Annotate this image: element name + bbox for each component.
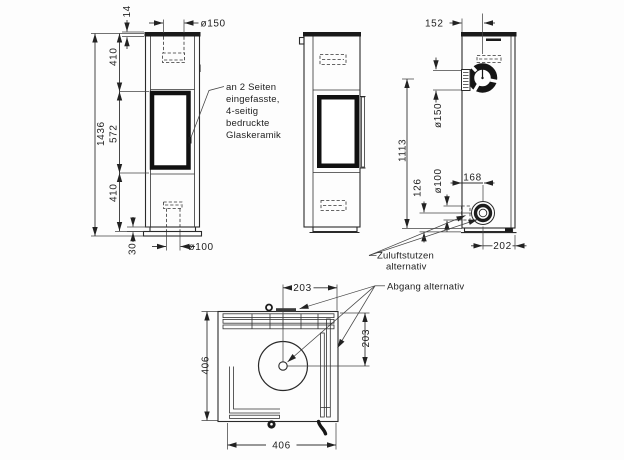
dim-front-top-plate: 14 [122, 5, 133, 17]
glass-note-leader-dot [189, 137, 192, 144]
plan-flue-center [279, 362, 287, 370]
back-flue-outlet [469, 63, 500, 93]
dim-back-air-inlet-from-right: 202 [493, 241, 512, 252]
flue-outlet-note: Abgang alternativ [288, 282, 465, 363]
plan-door-handle-hook [319, 422, 326, 434]
glass-note-line-1: an 2 Seiten [226, 82, 276, 93]
back-collar-hatch [477, 56, 501, 63]
flue-outlet-note-label: Abgang alternativ [387, 282, 464, 293]
side-top-vent-hidden [320, 55, 346, 65]
plan-hinge-pin [266, 305, 272, 311]
side-rear-tab [300, 38, 305, 45]
back-top-plate [461, 32, 517, 37]
dim-front-upper-section: 410 [109, 48, 120, 67]
dim-front-glass-section: 572 [109, 125, 120, 144]
side-glass-door [319, 97, 357, 166]
plan-front-knob [267, 420, 275, 428]
glass-note-line-5: Glaskeramik [226, 130, 281, 141]
dim-back-flue-center-height: 1113 [398, 139, 409, 162]
plan-top-collar-mark [276, 308, 296, 312]
dim-back-flue-center-from-edge: 152 [425, 19, 444, 30]
dim-back-air-inlet-from-left: 168 [463, 173, 482, 184]
air-inlet-note-line-1: Zuluftstutzen [377, 251, 434, 262]
dim-front-floor-duct-diameter: ø100 [189, 242, 214, 253]
side-top-plate [303, 32, 361, 37]
glass-note-line-3: 4-seitig [226, 106, 258, 117]
front-view: 1436 410 572 410 30 14 ø150 ø100 an 2 Se… [91, 5, 281, 255]
air-inlet-note-line-2: alternativ [386, 262, 427, 273]
front-flue-collar-hidden [163, 37, 185, 63]
front-glass-door [152, 93, 189, 168]
plan-corner-shield [230, 367, 281, 419]
dim-plan-flue-offset-horizontal: 203 [293, 283, 312, 294]
air-inlet-note: Zuluftstutzen alternativ [369, 216, 478, 273]
drawing-canvas: 1436 410 572 410 30 14 ø150 ø100 an 2 Se… [0, 0, 624, 460]
dim-back-rear-flue-diameter: ø150 [433, 103, 444, 128]
dim-back-air-inlet-center-height: 126 [413, 179, 424, 198]
glass-note-line-4: bedruckte [226, 118, 270, 129]
dim-plan-depth: 406 [201, 356, 212, 375]
dim-front-lower-section: 410 [109, 184, 120, 203]
back-dimensions [402, 14, 527, 250]
back-collar-hidden-edge [486, 39, 501, 42]
plan-top-grille [223, 314, 334, 329]
dim-front-base-height: 30 [128, 243, 139, 255]
front-base [144, 227, 202, 236]
side-bottom-vent-hidden [321, 201, 346, 211]
stove-dimension-drawing: 1436 410 572 410 30 14 ø150 ø100 an 2 Se… [0, 0, 624, 460]
plan-side-grille [321, 319, 331, 417]
glass-note-line-2: eingefasste, [226, 94, 280, 105]
front-top-plate [145, 32, 201, 37]
dim-front-flue-collar-diameter: ø150 [201, 19, 226, 30]
back-view: 152 ø150 1113 126 ø100 168 202 Zuluftstu… [288, 14, 527, 363]
side-door-handle [361, 97, 366, 169]
dim-plan-width: 406 [272, 441, 291, 452]
dim-plan-flue-offset-vertical: 203 [361, 329, 372, 348]
plan-view: 406 406 203 203 [201, 283, 373, 452]
glass-ceramic-note: an 2 Seiten eingefasste, 4-seitig bedruc… [189, 82, 282, 144]
side-view [300, 32, 366, 233]
back-side-flue-stub [462, 70, 471, 91]
dim-back-air-inlet-diameter: ø100 [433, 168, 444, 193]
side-base [310, 227, 360, 233]
dim-front-total-height: 1436 [96, 121, 107, 146]
